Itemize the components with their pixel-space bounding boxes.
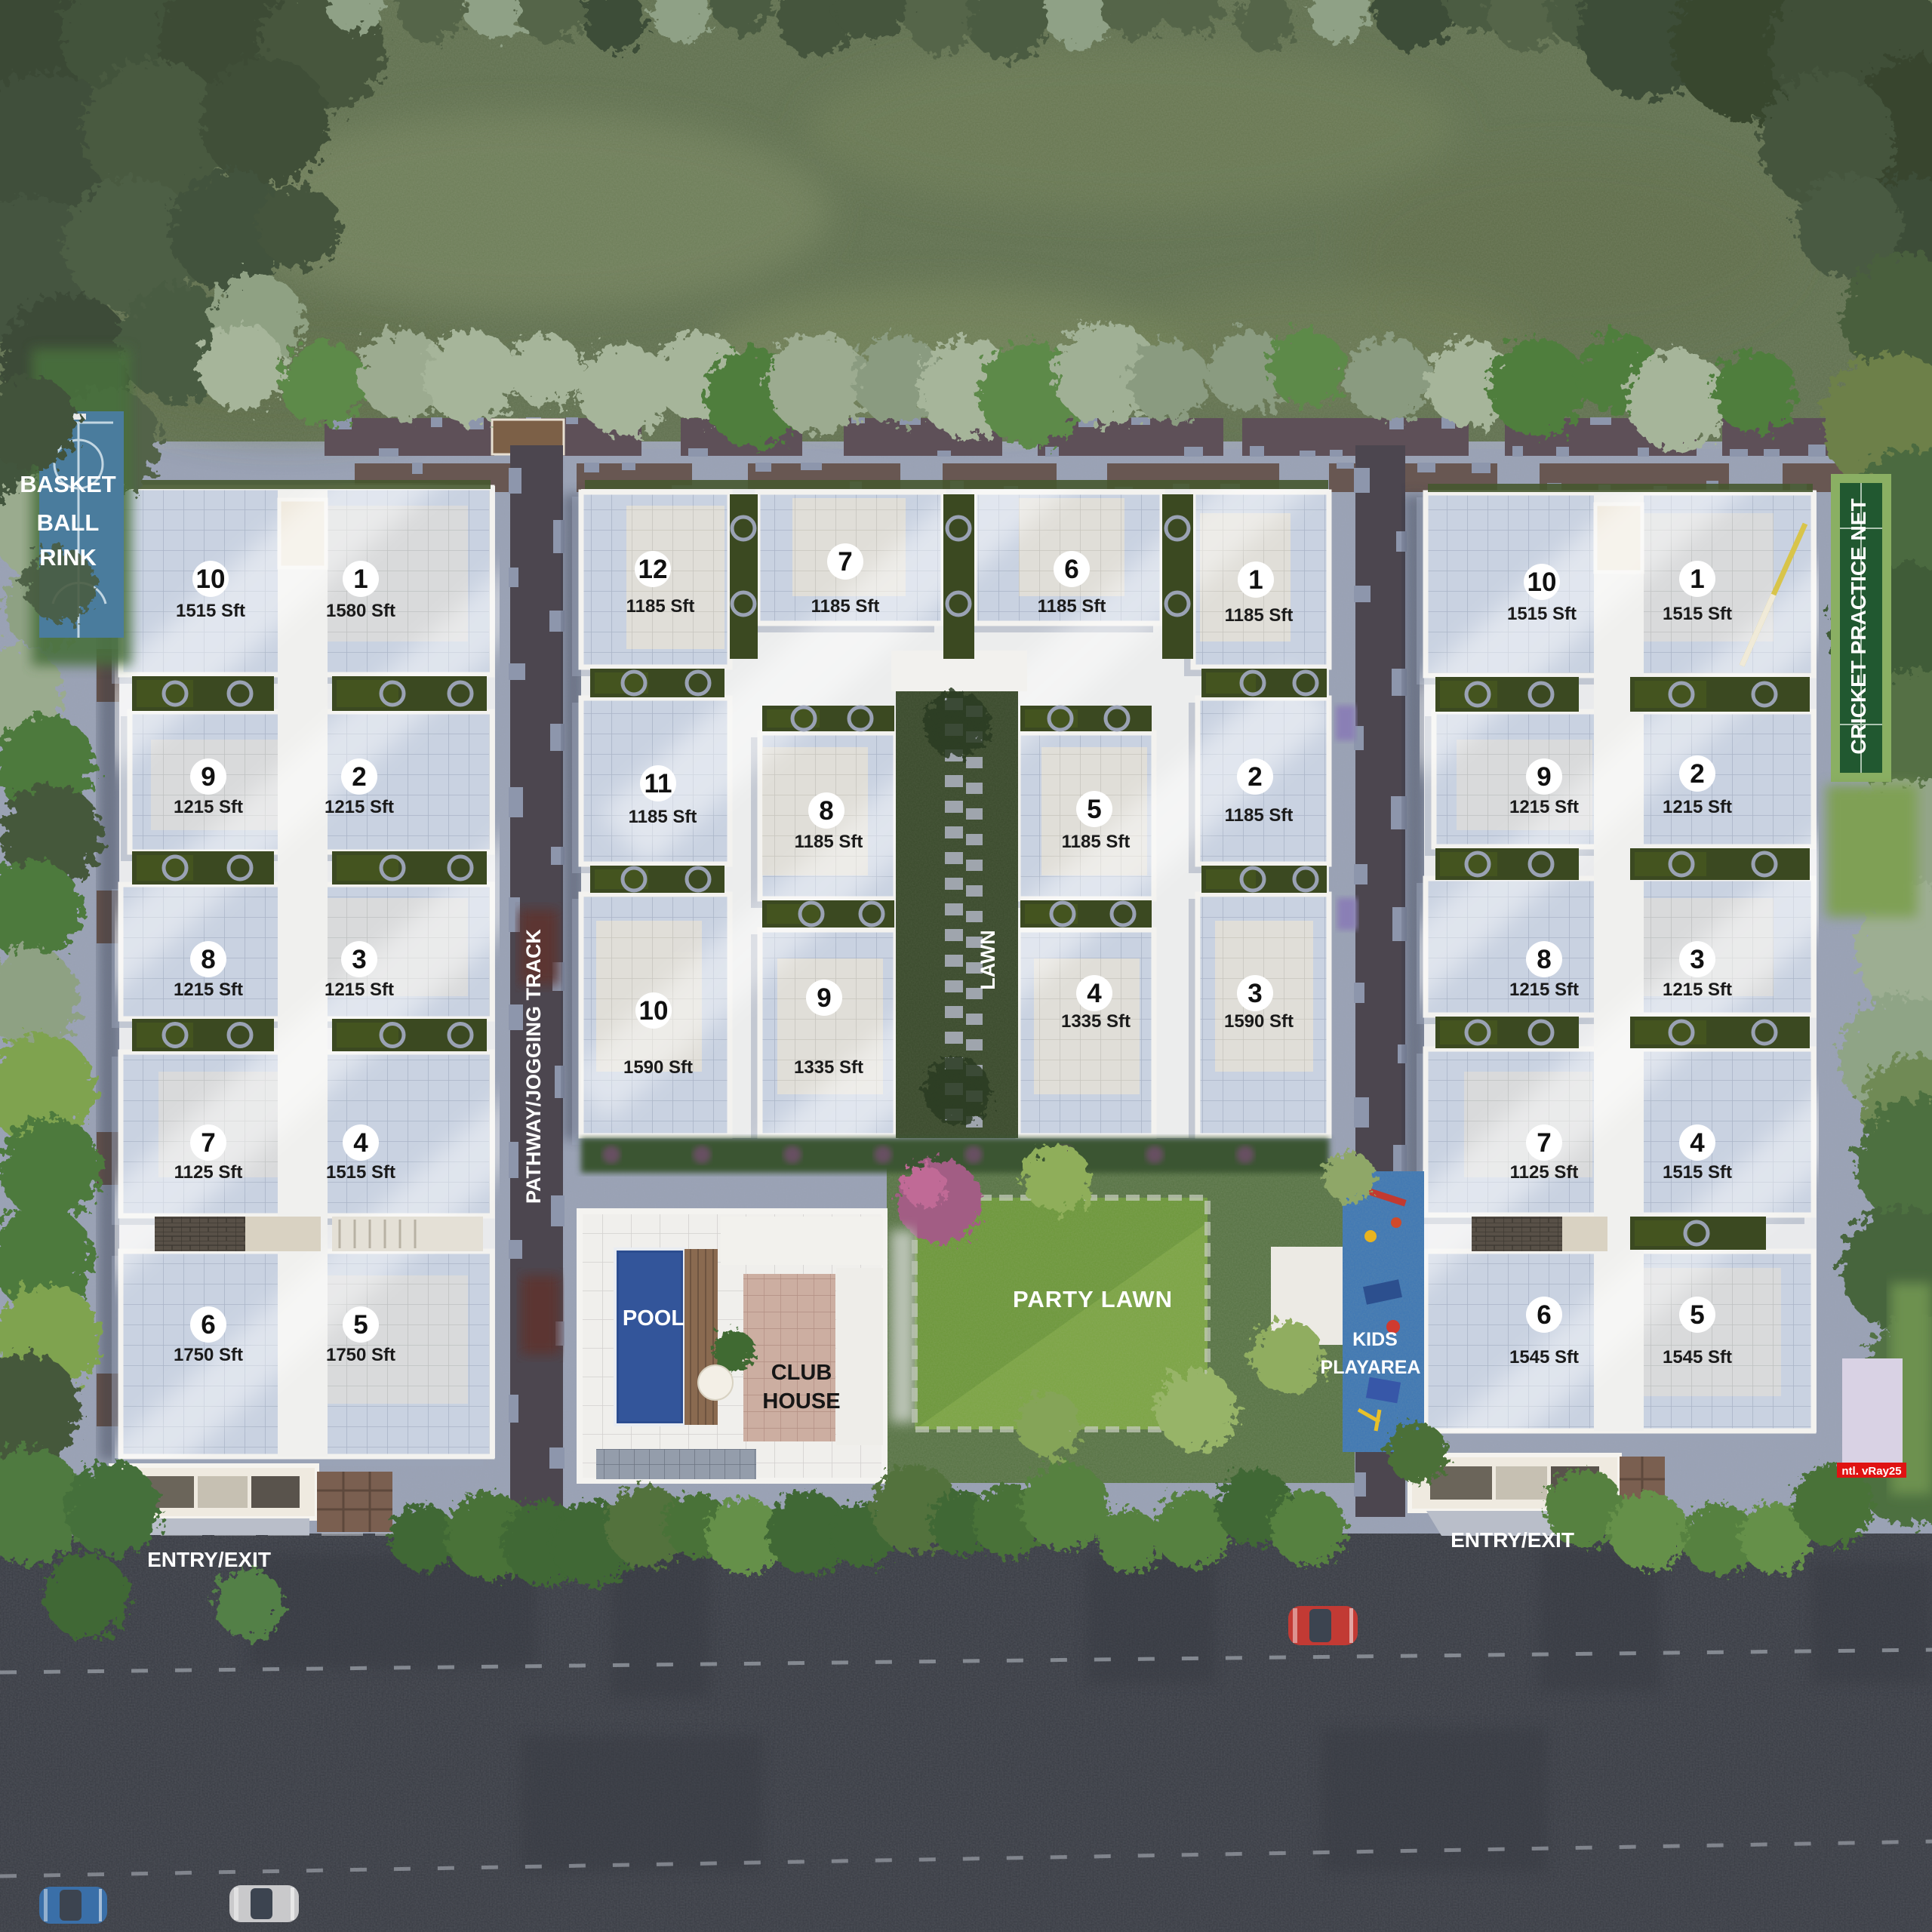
svg-text:1335 Sft: 1335 Sft xyxy=(1061,1011,1131,1032)
svg-text:6: 6 xyxy=(1064,555,1078,584)
svg-text:8: 8 xyxy=(201,945,215,974)
svg-text:6: 6 xyxy=(201,1310,215,1340)
svg-text:1750 Sft: 1750 Sft xyxy=(326,1345,395,1365)
svg-text:1215 Sft: 1215 Sft xyxy=(174,797,243,817)
svg-text:1125 Sft: 1125 Sft xyxy=(1510,1162,1579,1183)
svg-text:POOL: POOL xyxy=(623,1306,685,1331)
svg-text:5: 5 xyxy=(353,1310,368,1340)
svg-text:10: 10 xyxy=(1527,568,1557,597)
svg-text:1185 Sft: 1185 Sft xyxy=(811,596,880,617)
svg-text:1185 Sft: 1185 Sft xyxy=(626,596,695,617)
svg-text:9: 9 xyxy=(1537,762,1551,792)
svg-text:10: 10 xyxy=(196,565,226,594)
svg-text:10: 10 xyxy=(639,996,669,1026)
svg-text:1545 Sft: 1545 Sft xyxy=(1509,1347,1579,1367)
svg-text:2: 2 xyxy=(1690,759,1704,789)
svg-text:1: 1 xyxy=(1248,565,1263,595)
svg-text:4: 4 xyxy=(1087,979,1102,1008)
svg-text:1185 Sft: 1185 Sft xyxy=(629,807,697,827)
svg-text:2: 2 xyxy=(1247,762,1262,792)
svg-text:8: 8 xyxy=(819,796,833,826)
svg-text:7: 7 xyxy=(201,1128,215,1158)
svg-text:1125 Sft: 1125 Sft xyxy=(174,1162,243,1183)
svg-text:1590 Sft: 1590 Sft xyxy=(1224,1011,1294,1032)
svg-text:1515 Sft: 1515 Sft xyxy=(1507,604,1577,624)
svg-text:3: 3 xyxy=(352,945,366,974)
svg-text:1: 1 xyxy=(1690,565,1704,594)
svg-text:3: 3 xyxy=(1247,979,1262,1008)
svg-text:7: 7 xyxy=(838,547,852,577)
svg-text:1215 Sft: 1215 Sft xyxy=(1663,980,1732,1000)
svg-text:PARTY LAWN: PARTY LAWN xyxy=(1013,1286,1173,1312)
svg-text:1215 Sft: 1215 Sft xyxy=(1509,980,1579,1000)
svg-text:8: 8 xyxy=(1537,945,1551,974)
svg-text:5: 5 xyxy=(1087,795,1101,824)
svg-text:1515 Sft: 1515 Sft xyxy=(1663,604,1732,624)
svg-text:ENTRY/EXIT: ENTRY/EXIT xyxy=(1451,1528,1574,1552)
svg-text:1515 Sft: 1515 Sft xyxy=(1663,1162,1732,1183)
svg-text:1215 Sft: 1215 Sft xyxy=(325,797,394,817)
svg-text:12: 12 xyxy=(638,555,668,584)
svg-text:PATHWAY/JOGGING TRACK: PATHWAY/JOGGING TRACK xyxy=(522,928,545,1204)
svg-text:1515 Sft: 1515 Sft xyxy=(176,601,245,621)
svg-text:BASKET: BASKET xyxy=(20,471,116,497)
svg-text:LAWN: LAWN xyxy=(977,930,999,989)
svg-text:1185 Sft: 1185 Sft xyxy=(795,832,863,852)
svg-text:1545 Sft: 1545 Sft xyxy=(1663,1347,1732,1367)
svg-text:1185 Sft: 1185 Sft xyxy=(1062,832,1131,852)
svg-text:7: 7 xyxy=(1537,1128,1551,1158)
svg-text:9: 9 xyxy=(201,762,215,792)
svg-text:HOUSE: HOUSE xyxy=(762,1389,840,1414)
svg-text:CLUB: CLUB xyxy=(771,1361,832,1385)
svg-text:1580 Sft: 1580 Sft xyxy=(326,601,395,621)
svg-text:1215 Sft: 1215 Sft xyxy=(174,980,243,1000)
svg-text:1215 Sft: 1215 Sft xyxy=(1509,797,1579,817)
svg-text:PLAYAREA: PLAYAREA xyxy=(1321,1357,1421,1378)
svg-text:5: 5 xyxy=(1690,1300,1704,1330)
svg-text:CRICKET PRACTICE NET: CRICKET PRACTICE NET xyxy=(1847,498,1870,754)
svg-text:ntl. vRay25: ntl. vRay25 xyxy=(1841,1465,1901,1478)
svg-text:1: 1 xyxy=(353,565,368,594)
svg-text:4: 4 xyxy=(353,1128,368,1158)
svg-text:RINK: RINK xyxy=(39,544,97,571)
svg-text:1515 Sft: 1515 Sft xyxy=(326,1162,395,1183)
svg-text:4: 4 xyxy=(1690,1128,1705,1158)
svg-text:1335 Sft: 1335 Sft xyxy=(794,1057,863,1078)
svg-text:6: 6 xyxy=(1537,1300,1551,1330)
svg-text:2: 2 xyxy=(352,762,366,792)
svg-text:11: 11 xyxy=(645,769,672,798)
svg-text:1590 Sft: 1590 Sft xyxy=(623,1057,693,1078)
svg-text:1750 Sft: 1750 Sft xyxy=(174,1345,243,1365)
svg-text:9: 9 xyxy=(817,983,831,1013)
svg-text:1215 Sft: 1215 Sft xyxy=(325,980,394,1000)
svg-text:1185 Sft: 1185 Sft xyxy=(1038,596,1106,617)
svg-text:1215 Sft: 1215 Sft xyxy=(1663,797,1732,817)
svg-text:BALL: BALL xyxy=(37,509,100,536)
svg-text:1185 Sft: 1185 Sft xyxy=(1225,605,1294,626)
svg-text:1185 Sft: 1185 Sft xyxy=(1225,805,1294,826)
svg-text:KIDS: KIDS xyxy=(1352,1329,1398,1350)
svg-text:ENTRY/EXIT: ENTRY/EXIT xyxy=(147,1548,271,1571)
svg-text:3: 3 xyxy=(1690,945,1704,974)
